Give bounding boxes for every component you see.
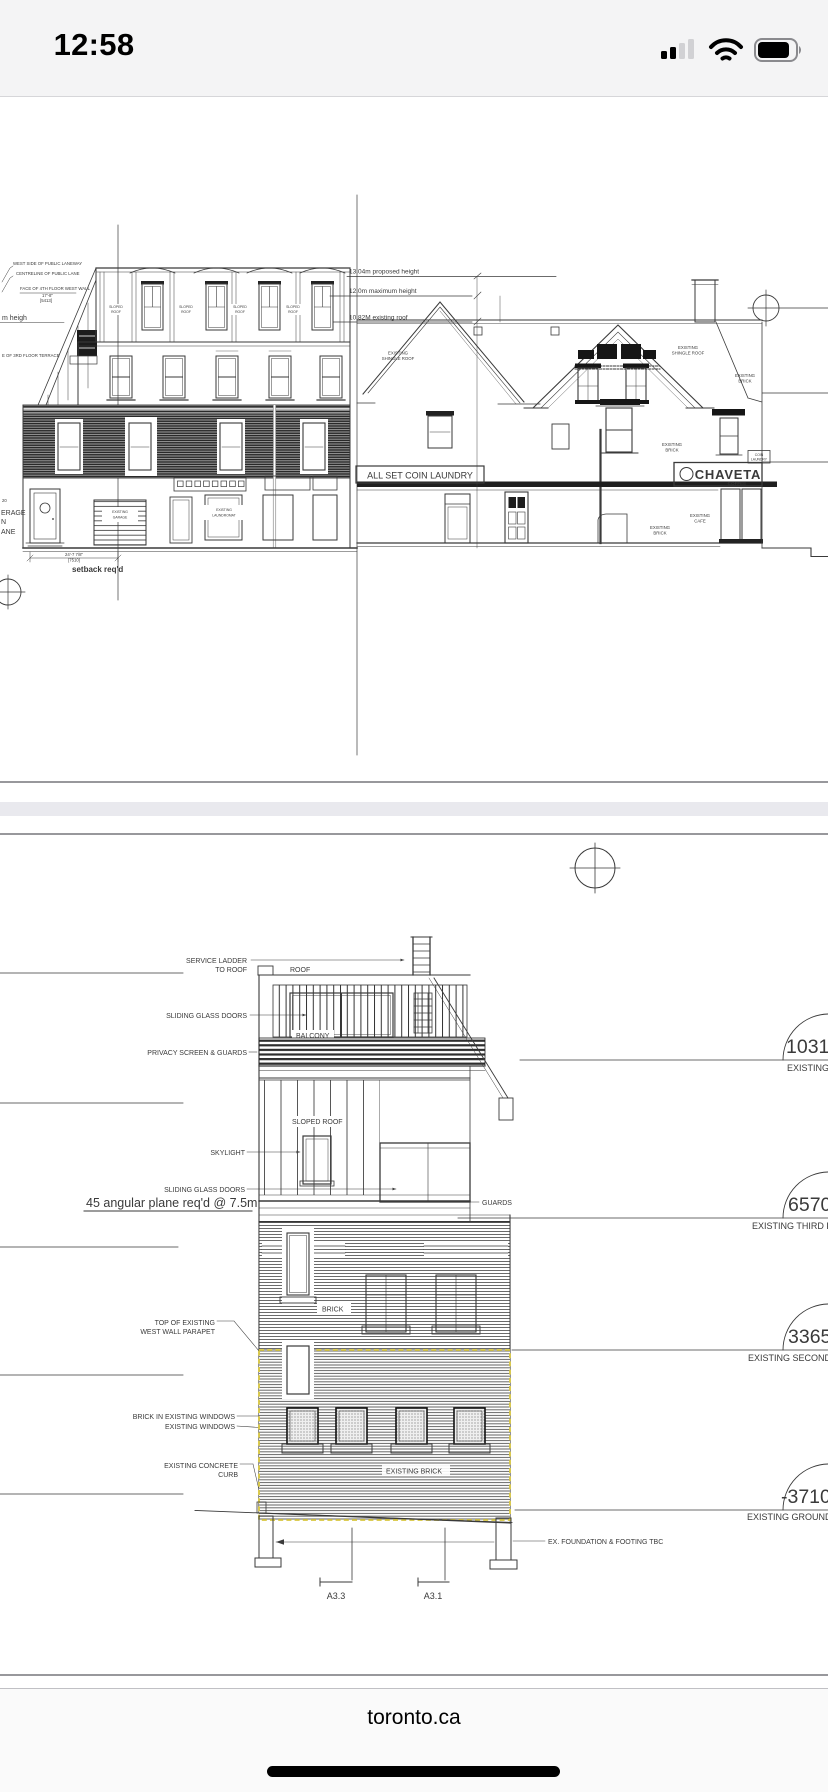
brick-in-windows-label: BRICK IN EXISTING WINDOWS (133, 1414, 236, 1421)
svg-text:SHINGLE ROOF: SHINGLE ROOF (382, 356, 415, 361)
parapet-label: TOP OF EXISTING (155, 1320, 215, 1327)
svg-text:SLOPED: SLOPED (179, 305, 193, 309)
guards-label: GUARDS (482, 1200, 512, 1207)
svg-text:ROOF: ROOF (111, 310, 121, 314)
status-time: 12:58 (46, 27, 142, 63)
sloped-roof-label: SLOPED (109, 305, 123, 309)
section-markers: A3.3 A3.1 (320, 1578, 449, 1601)
proposed-height-label: 13.04m proposed height (349, 269, 419, 276)
note-setback: setback req'd (72, 565, 123, 574)
maximum-height-label: 12.0m maximum height (349, 288, 417, 295)
svg-text:ROOF: ROOF (181, 310, 191, 314)
brick-label-mid: EXISTING (662, 442, 683, 447)
cafe-label: EXISTING (690, 513, 711, 518)
sliding-doors-upper-label: SLIDING GLASS DOORS (166, 1013, 247, 1020)
chaveta-sign-text: CHAVETA (695, 467, 762, 482)
level-value-ground: -3710 (781, 1486, 828, 1508)
shingle-roof-label-1: EXISTING (388, 351, 409, 356)
laundry-sign-text: ALL SET COIN LAUNDRY (367, 471, 473, 481)
svg-text:LAUNDRY: LAUNDRY (751, 458, 768, 462)
site-label: toronto.ca (0, 1706, 828, 1730)
pdf-page-1[interactable]: WEST SIDE OF PUBLIC LANEWAY CENTRELINE O… (0, 97, 828, 783)
note-laneway: WEST SIDE OF PUBLIC LANEWAY (13, 261, 82, 266)
note-dim-b: 24'-7 7/8" (65, 552, 84, 557)
battery-icon (754, 37, 804, 63)
wifi-icon (708, 36, 744, 64)
level-value-second: 3365 (788, 1326, 828, 1348)
sloped-roof-label: SLOPED ROOF (292, 1119, 343, 1126)
level-value-third: 6570 (788, 1194, 828, 1216)
level-label-ground: EXISTING GROUND F (747, 1512, 828, 1522)
note-face-wall: FACE OF 4TH FLOOR WEST WALL (20, 286, 91, 291)
note-m-heigh: m heigh (2, 315, 27, 322)
level-label-third: EXISTING THIRD F (752, 1221, 828, 1231)
note-20: 20 (2, 498, 7, 503)
existing-brick-zone: EXISTING BRICK (259, 1341, 510, 1520)
svg-text:ROOF: ROOF (288, 310, 298, 314)
foundation-piers (255, 1516, 517, 1569)
garage-label: EXISTING (112, 510, 128, 514)
browser-footer: toronto.ca (0, 1688, 828, 1792)
existing-brick-label: EXISTING BRICK (386, 1469, 442, 1476)
coin-laundry-small-sign: COIN LAUNDRY (748, 451, 770, 464)
coffee-sign-text: COFFEE (728, 481, 747, 486)
gable-dormer-windows (575, 364, 649, 405)
existing-windows-label: EXISTING WINDOWS (165, 1424, 235, 1431)
survey-marker-top (570, 843, 620, 893)
cellular-signal-icon (661, 37, 698, 63)
section-tag-a33: A3.3 (327, 1591, 346, 1601)
section-building: BALCONY SLOPED ROOF (195, 937, 517, 1601)
section-tag-a31: A3.1 (424, 1591, 443, 1601)
note-lane: ANE (1, 529, 16, 536)
survey-marker-right (748, 290, 828, 326)
sliding-doors-lower-label: SLIDING GLASS DOORS (164, 1187, 245, 1194)
home-indicator[interactable] (267, 1766, 560, 1777)
shingle-roof-label-2: EXISTING (678, 345, 699, 350)
service-ladder-label: SERVICE LADDER (186, 958, 247, 965)
privacy-screen-label: PRIVACY SCREEN & GUARDS (147, 1050, 247, 1057)
note-coverage: ERAGE (1, 510, 26, 517)
svg-text:SHINGLE ROOF: SHINGLE ROOF (672, 351, 705, 356)
laundromat-label: EXISTING (216, 508, 232, 512)
svg-text:WEST WALL PARAPET: WEST WALL PARAPET (140, 1329, 215, 1336)
privacy-louvres (259, 1038, 485, 1066)
svg-text:CAFE: CAFE (694, 519, 706, 524)
status-bar: 12:58 (0, 0, 828, 97)
storefront-sign-squares (178, 481, 245, 487)
laundry-sign: ALL SET COIN LAUNDRY (356, 466, 484, 483)
brick-label: BRICK (322, 1307, 344, 1314)
level-value-roof: 1031 (786, 1036, 828, 1058)
cafe-storefront (692, 280, 828, 557)
garage-door: EXISTING GARAGE (94, 500, 146, 545)
laundromat-storefront: EXISTING LAUNDROMAT (204, 495, 337, 540)
note-centreline: CENTRELINE OF PUBLIC LANE (16, 271, 80, 276)
foundation-label: EX. FOUNDATION & FOOTING TBC (548, 1539, 663, 1546)
middle-house: EXISTING SHINGLE ROOF (357, 302, 762, 448)
existing-roof-label: 10.82M existing roof (349, 315, 408, 322)
svg-text:COIN: COIN (755, 453, 764, 457)
mansard-sloped-roof-labels: SLOPEDROOF SLOPEDROOF SLOPEDROOF SLOPEDR… (105, 304, 304, 315)
svg-text:LAUNDROMAT: LAUNDROMAT (212, 514, 235, 518)
svg-text:BRICK: BRICK (653, 531, 666, 536)
sheet2-drawing: SERVICE LADDER TO ROOF ROOF SLIDING GLAS… (0, 835, 828, 1674)
third-floor-windows (107, 356, 345, 400)
left-building: SLOPEDROOF SLOPEDROOF SLOPEDROOF SLOPEDR… (23, 268, 357, 552)
pdf-page-2[interactable]: SERVICE LADDER TO ROOF ROOF SLIDING GLAS… (0, 833, 828, 1676)
note-terrace: E OF 3RD FLOOR TERRACE (2, 353, 60, 358)
skylight-label: SKYLIGHT (210, 1150, 245, 1157)
svg-text:GARAGE: GARAGE (113, 516, 128, 520)
level-label-roof: EXISTING (787, 1063, 828, 1073)
laneway-door (26, 489, 64, 546)
page-separator (0, 785, 828, 833)
brick-label-low: EXISTING (650, 525, 671, 530)
sheet1-drawing: WEST SIDE OF PUBLIC LANEWAY CENTRELINE O… (0, 97, 828, 781)
svg-text:BRICK: BRICK (665, 448, 678, 453)
note-dim-b-mm: [7510] (68, 558, 80, 563)
status-icons (661, 36, 804, 64)
note-dim-a-mm: [5413] (40, 298, 52, 303)
svg-text:SLOPED: SLOPED (233, 305, 247, 309)
svg-text:SLOPED: SLOPED (286, 305, 300, 309)
svg-text:CURB: CURB (218, 1472, 238, 1479)
level-label-second: EXISTING SECOND F (748, 1353, 828, 1363)
chaveta-logo-icon (680, 468, 693, 481)
level-markers: 1031 EXISTING 6570 EXISTING THIRD F 3365… (458, 1014, 828, 1522)
sliding-doors-window (380, 1143, 470, 1202)
roof-label: ROOF (290, 967, 310, 974)
svg-text:ROOF: ROOF (235, 310, 245, 314)
angular-plane-label: 45 angular plane req'd @ 7.5m (86, 1196, 257, 1210)
right-house: EXISTING SHINGLE ROOF EXISTING BRICK (357, 325, 777, 547)
survey-marker-bottom-left (0, 575, 25, 609)
concrete-curb-label: EXISTING CONCRETE (164, 1463, 238, 1470)
svg-text:TO ROOF: TO ROOF (215, 967, 247, 974)
iphone-screen: 12:58 (0, 0, 828, 1792)
note-coverage-2: N (1, 519, 6, 526)
chimney (695, 280, 715, 322)
